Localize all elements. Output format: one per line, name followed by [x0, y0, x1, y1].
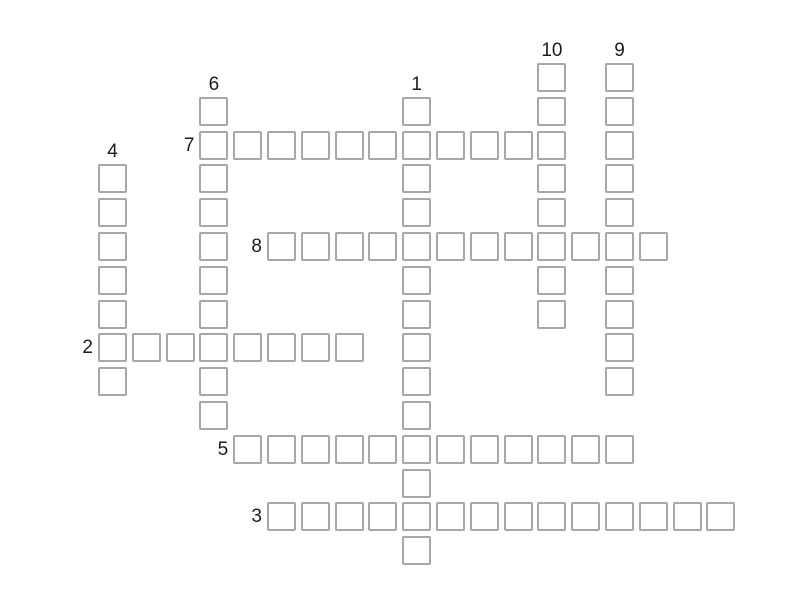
crossword-cell[interactable]	[605, 333, 634, 362]
crossword-cell[interactable]	[199, 333, 228, 362]
crossword-cell[interactable]	[166, 333, 195, 362]
crossword-cell[interactable]	[267, 131, 296, 160]
crossword-cell[interactable]	[199, 131, 228, 160]
crossword-cell[interactable]	[98, 367, 127, 396]
crossword-cell[interactable]	[537, 97, 566, 126]
crossword-cell[interactable]	[605, 266, 634, 295]
crossword-cell[interactable]	[504, 131, 533, 160]
crossword-cell[interactable]	[402, 367, 431, 396]
crossword-cell[interactable]	[537, 266, 566, 295]
crossword-cell[interactable]	[199, 198, 228, 227]
crossword-cell[interactable]	[605, 367, 634, 396]
clue-number-7-across: 7	[134, 136, 194, 156]
crossword-cell[interactable]	[537, 502, 566, 531]
crossword-cell[interactable]	[537, 435, 566, 464]
crossword-cell[interactable]	[504, 232, 533, 261]
crossword-cell[interactable]	[402, 131, 431, 160]
crossword-cell[interactable]	[132, 333, 161, 362]
crossword-cell[interactable]	[233, 435, 262, 464]
clue-number-1-down: 1	[387, 75, 447, 95]
crossword-cell[interactable]	[639, 502, 668, 531]
crossword-cell[interactable]	[368, 131, 397, 160]
crossword-cell[interactable]	[504, 435, 533, 464]
crossword-cell[interactable]	[368, 435, 397, 464]
crossword-cell[interactable]	[98, 300, 127, 329]
crossword-cell[interactable]	[335, 435, 364, 464]
crossword-cell[interactable]	[98, 333, 127, 362]
crossword-cell[interactable]	[470, 435, 499, 464]
crossword-cell[interactable]	[335, 131, 364, 160]
crossword-cell[interactable]	[605, 97, 634, 126]
crossword-cell[interactable]	[605, 198, 634, 227]
crossword-cell[interactable]	[537, 232, 566, 261]
crossword-cell[interactable]	[199, 367, 228, 396]
crossword-cell[interactable]	[706, 502, 735, 531]
crossword-cell[interactable]	[98, 266, 127, 295]
crossword-cell[interactable]	[605, 63, 634, 92]
crossword-cell[interactable]	[368, 232, 397, 261]
crossword-cell[interactable]	[436, 232, 465, 261]
crossword-cell[interactable]	[436, 502, 465, 531]
crossword-cell[interactable]	[470, 131, 499, 160]
crossword-cell[interactable]	[267, 232, 296, 261]
crossword-cell[interactable]	[537, 300, 566, 329]
crossword-cell[interactable]	[402, 333, 431, 362]
clue-number-9-down: 9	[590, 41, 650, 61]
crossword-cell[interactable]	[233, 131, 262, 160]
crossword-cell[interactable]	[605, 131, 634, 160]
crossword-cell[interactable]	[605, 300, 634, 329]
crossword-cell[interactable]	[504, 502, 533, 531]
crossword-cell[interactable]	[537, 164, 566, 193]
crossword-cell[interactable]	[402, 266, 431, 295]
clue-number-6-down: 6	[184, 75, 244, 95]
crossword-cell[interactable]	[470, 502, 499, 531]
crossword-cell[interactable]	[436, 435, 465, 464]
crossword-cell[interactable]	[402, 435, 431, 464]
crossword-cell[interactable]	[402, 469, 431, 498]
crossword-cell[interactable]	[402, 232, 431, 261]
crossword-cell[interactable]	[402, 300, 431, 329]
crossword-cell[interactable]	[199, 300, 228, 329]
clue-number-10-down: 10	[522, 41, 582, 61]
crossword-cell[interactable]	[402, 502, 431, 531]
crossword-cell[interactable]	[402, 536, 431, 565]
crossword-cell[interactable]	[368, 502, 397, 531]
clue-number-8-across: 8	[202, 237, 262, 257]
crossword-cell[interactable]	[402, 401, 431, 430]
crossword-cell[interactable]	[199, 401, 228, 430]
crossword-cell[interactable]	[98, 198, 127, 227]
crossword-cell[interactable]	[267, 333, 296, 362]
crossword-cell[interactable]	[571, 232, 600, 261]
crossword-cell[interactable]	[199, 97, 228, 126]
crossword-cell[interactable]	[402, 97, 431, 126]
crossword-cell[interactable]	[98, 232, 127, 261]
crossword-cell[interactable]	[402, 198, 431, 227]
crossword-cell[interactable]	[537, 63, 566, 92]
crossword-cell[interactable]	[639, 232, 668, 261]
crossword-cell[interactable]	[301, 502, 330, 531]
crossword-cell[interactable]	[537, 198, 566, 227]
crossword-cell[interactable]	[605, 502, 634, 531]
crossword-cell[interactable]	[402, 164, 431, 193]
crossword-cell[interactable]	[267, 435, 296, 464]
crossword-cell[interactable]	[335, 232, 364, 261]
clue-number-3-across: 3	[202, 507, 262, 527]
crossword-cell[interactable]	[571, 502, 600, 531]
crossword-cell[interactable]	[301, 232, 330, 261]
crossword-cell[interactable]	[98, 164, 127, 193]
crossword-cell[interactable]	[470, 232, 499, 261]
crossword-cell[interactable]	[199, 266, 228, 295]
clue-number-2-across: 2	[33, 338, 93, 358]
clue-number-5-across: 5	[168, 440, 228, 460]
crossword-cell[interactable]	[537, 131, 566, 160]
crossword-cell[interactable]	[233, 333, 262, 362]
crossword-cell[interactable]	[605, 232, 634, 261]
crossword-cell[interactable]	[335, 502, 364, 531]
crossword-cell[interactable]	[605, 435, 634, 464]
crossword-cell[interactable]	[267, 502, 296, 531]
crossword-cell[interactable]	[301, 333, 330, 362]
crossword-cell[interactable]	[199, 164, 228, 193]
crossword-cell[interactable]	[571, 435, 600, 464]
crossword-cell[interactable]	[436, 131, 465, 160]
crossword-cell[interactable]	[673, 502, 702, 531]
crossword-cell[interactable]	[335, 333, 364, 362]
crossword-cell[interactable]	[605, 164, 634, 193]
crossword-board: 10961478253	[0, 0, 800, 600]
crossword-cell[interactable]	[301, 131, 330, 160]
crossword-cell[interactable]	[301, 435, 330, 464]
